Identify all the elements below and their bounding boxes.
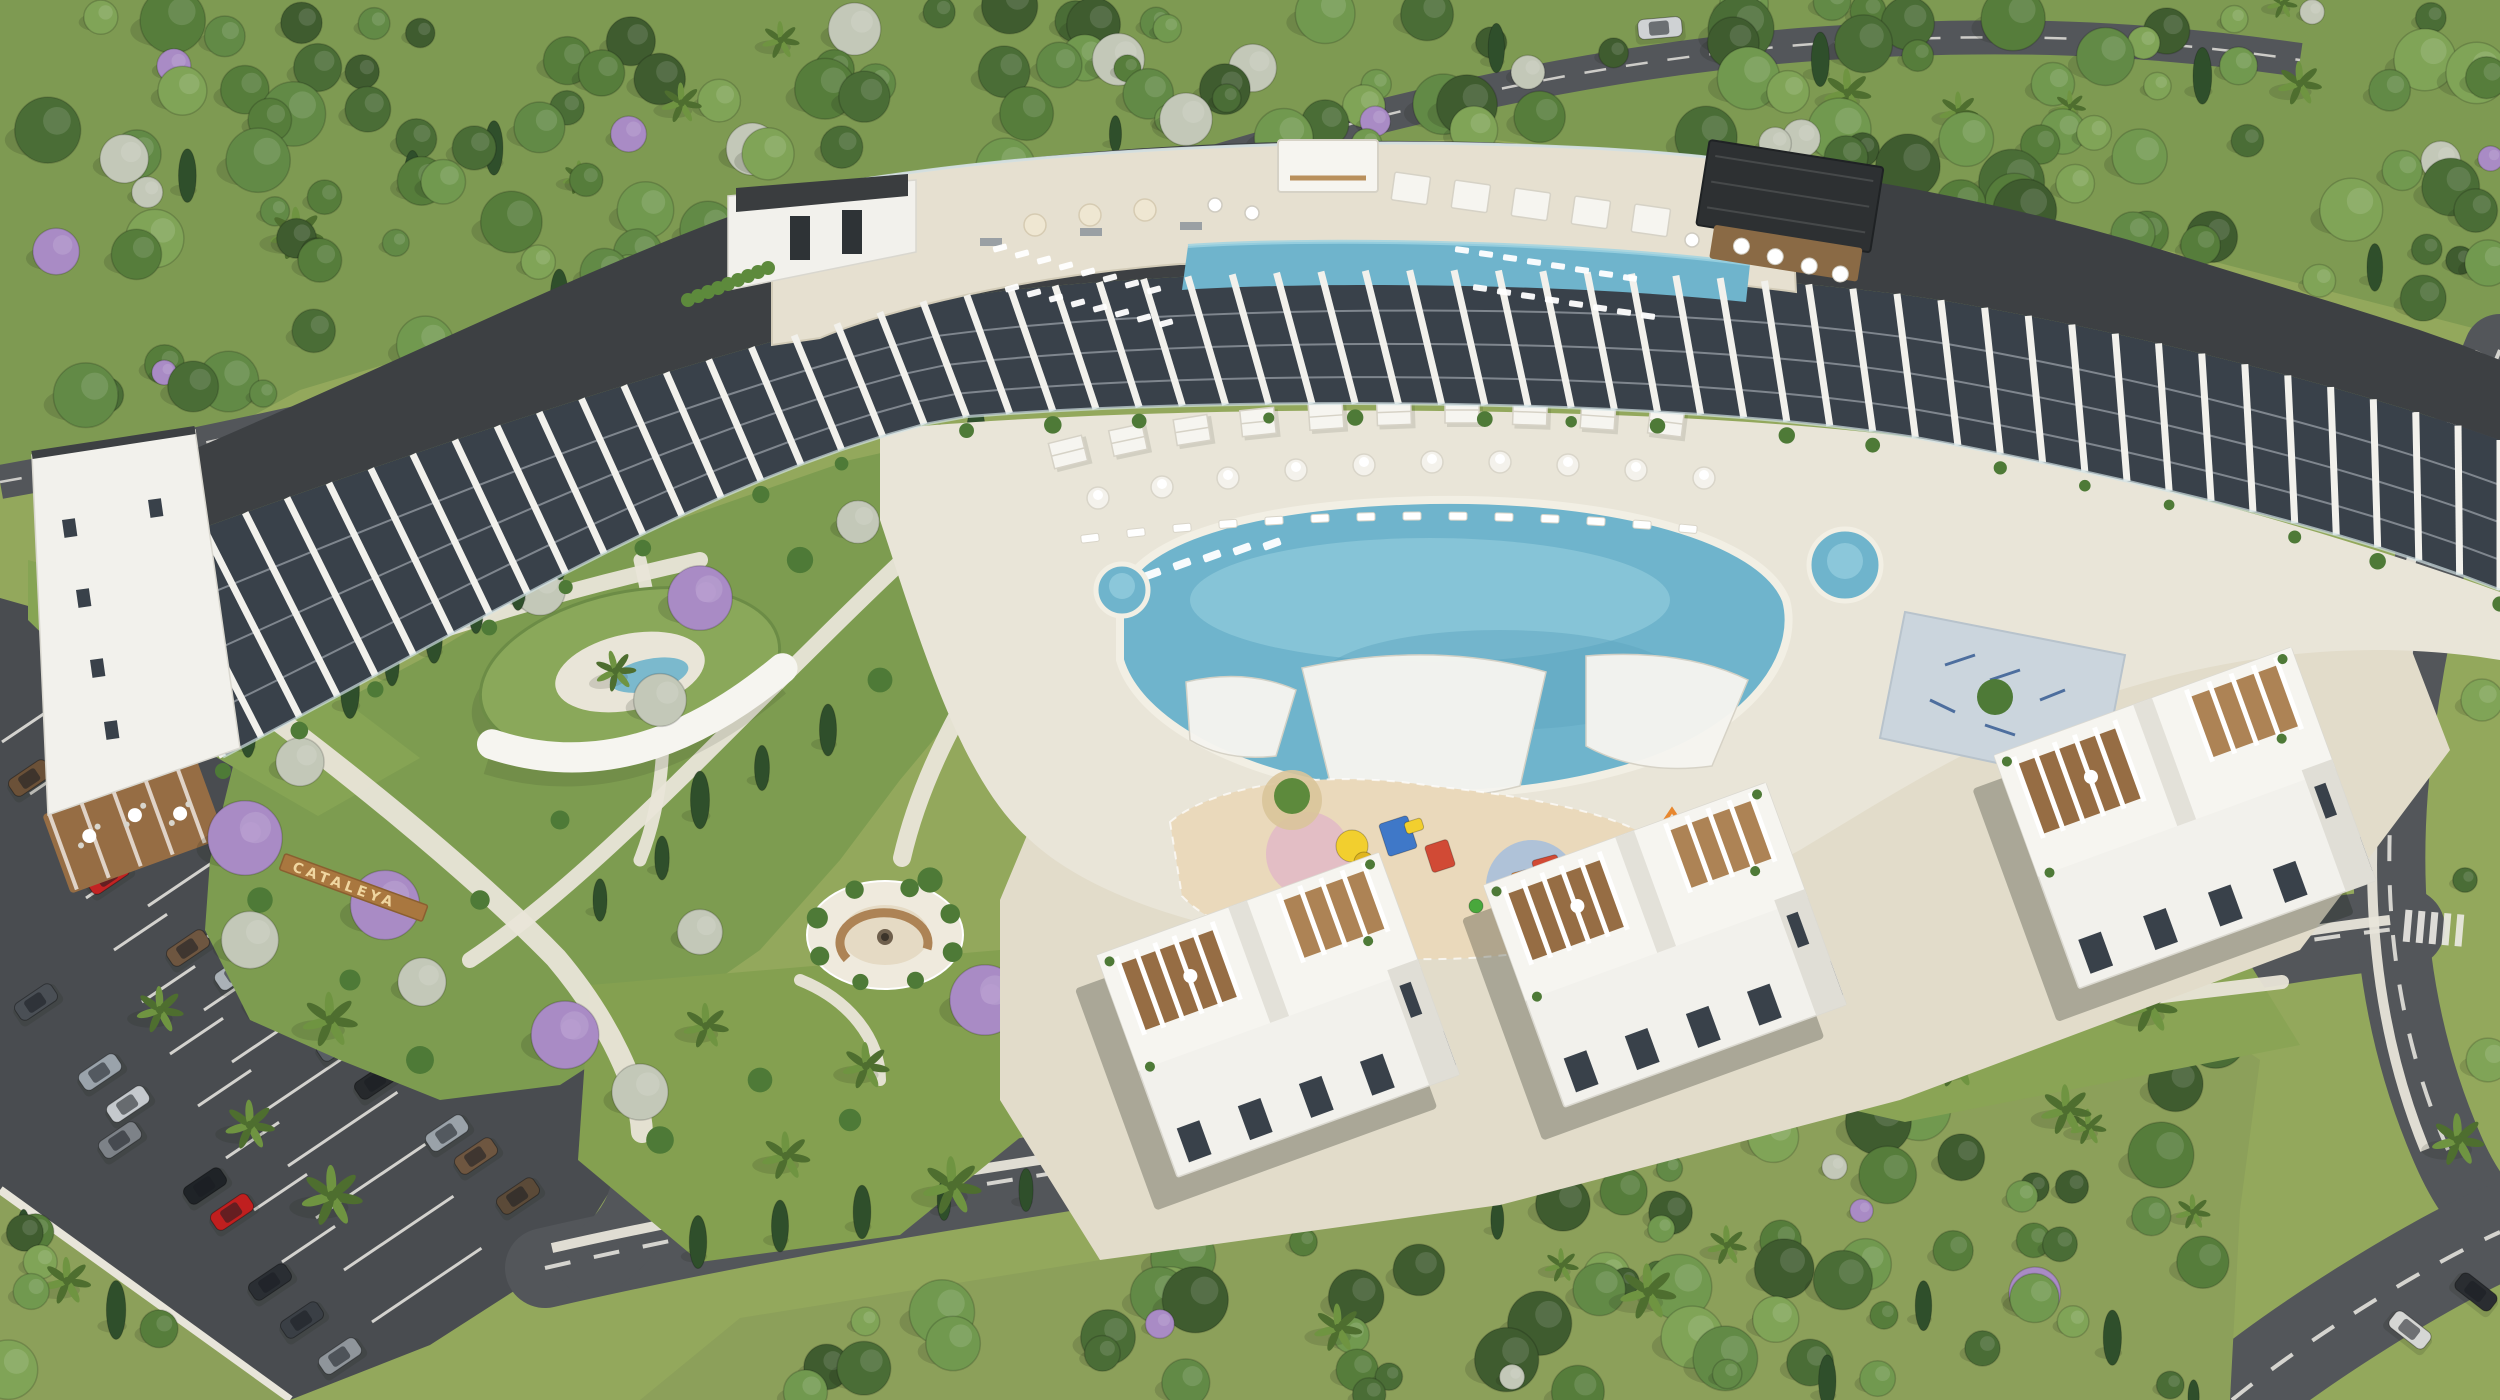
pod-chair bbox=[1685, 233, 1699, 247]
tree-highlight bbox=[1843, 142, 1861, 160]
tree-highlight bbox=[224, 360, 249, 385]
tree-highlight bbox=[1471, 113, 1491, 133]
tree-highlight bbox=[2149, 1202, 2165, 1218]
tree-highlight bbox=[2399, 156, 2416, 173]
tree-highlight bbox=[241, 73, 261, 93]
tree-highlight bbox=[2317, 269, 2331, 283]
tree-highlight bbox=[851, 11, 873, 33]
tree-highlight bbox=[1352, 1278, 1375, 1301]
tree-highlight bbox=[2447, 167, 2471, 191]
pod-chair bbox=[1208, 198, 1222, 212]
tree-highlight bbox=[179, 74, 200, 95]
tree-highlight bbox=[1165, 19, 1177, 31]
tree-highlight bbox=[656, 61, 678, 83]
tree-highlight bbox=[419, 965, 439, 985]
tree-highlight bbox=[2130, 218, 2148, 236]
bush bbox=[1994, 461, 2007, 474]
tree-highlight bbox=[1280, 117, 1305, 142]
palm-crown bbox=[778, 37, 784, 43]
palm-crown bbox=[2280, 1, 2285, 6]
cypress-tree bbox=[1019, 1168, 1033, 1211]
daybed-cushion bbox=[1223, 470, 1233, 480]
tree-highlight bbox=[2163, 15, 2182, 34]
cypress-tree bbox=[689, 1216, 706, 1269]
tree-highlight bbox=[1904, 5, 1926, 27]
tree-highlight bbox=[254, 138, 281, 165]
tree-highlight bbox=[1526, 60, 1540, 74]
bush bbox=[839, 1109, 861, 1131]
sun-lounger bbox=[1633, 520, 1652, 529]
bush bbox=[1347, 409, 1363, 425]
tree-highlight bbox=[1780, 1248, 1805, 1273]
rooftop-bar-pavilion bbox=[1278, 140, 1378, 192]
car bbox=[1634, 16, 1686, 45]
tree-highlight bbox=[156, 1316, 172, 1332]
tree-highlight bbox=[2101, 36, 2125, 60]
fire-pit-seating bbox=[807, 879, 963, 990]
gable-window bbox=[76, 588, 91, 608]
render-viewport: Aerial 3D architectural rendering - CATA… bbox=[0, 0, 2500, 1400]
purple-tree-highlight bbox=[981, 984, 1001, 1004]
tree-highlight bbox=[1415, 1252, 1437, 1274]
tree-highlight bbox=[1354, 1355, 1372, 1373]
tree-highlight bbox=[145, 181, 158, 194]
palm-crown bbox=[1334, 1324, 1342, 1332]
tree-highlight bbox=[764, 136, 786, 158]
tree-highlight bbox=[314, 51, 334, 71]
tree-highlight bbox=[626, 122, 641, 137]
tree-highlight bbox=[1090, 6, 1113, 29]
parasol bbox=[1024, 214, 1046, 236]
tree-highlight bbox=[1915, 45, 1928, 58]
tree-highlight bbox=[1773, 132, 1787, 146]
cypress-tree bbox=[1819, 1355, 1836, 1400]
tree-highlight bbox=[1668, 1197, 1686, 1215]
tree-highlight bbox=[2136, 137, 2159, 160]
tree-highlight bbox=[1611, 43, 1623, 55]
tree-highlight bbox=[246, 920, 270, 944]
tree-highlight bbox=[2198, 231, 2215, 248]
deck-bench bbox=[1080, 228, 1102, 236]
bush bbox=[752, 486, 769, 503]
tree-highlight bbox=[294, 224, 311, 241]
purple-tree-highlight bbox=[241, 822, 261, 842]
tree-highlight bbox=[2236, 53, 2252, 69]
sun-lounger bbox=[1495, 513, 1513, 521]
facade-fin bbox=[2373, 399, 2377, 547]
bush bbox=[2079, 480, 2091, 492]
tree-highlight bbox=[2420, 282, 2439, 301]
tree-highlight bbox=[839, 132, 857, 150]
tree-highlight bbox=[2020, 1185, 2033, 1198]
tree-highlight bbox=[1182, 101, 1204, 123]
sun-lounger bbox=[1587, 517, 1605, 526]
tree-highlight bbox=[1100, 1341, 1115, 1356]
bush bbox=[1565, 416, 1576, 427]
tree-highlight bbox=[2463, 871, 2473, 881]
tree-highlight bbox=[1191, 1277, 1219, 1305]
tree-highlight bbox=[1744, 56, 1770, 82]
deck-bench bbox=[980, 238, 1002, 246]
tree-highlight bbox=[949, 1324, 972, 1347]
tree-highlight bbox=[1182, 1366, 1202, 1386]
cypress-tree bbox=[853, 1185, 871, 1239]
tree-highlight bbox=[360, 60, 374, 74]
sun-lounger bbox=[1219, 519, 1238, 528]
tree-highlight bbox=[642, 190, 666, 214]
bush bbox=[215, 763, 231, 779]
cypress-tree bbox=[1491, 1200, 1504, 1239]
cypress-tree bbox=[2103, 1310, 2121, 1365]
cypress-tree bbox=[655, 836, 669, 880]
parasol bbox=[1079, 204, 1101, 226]
bush bbox=[646, 1126, 674, 1154]
tree-highlight bbox=[1835, 108, 1861, 134]
tree-highlight bbox=[1833, 1158, 1844, 1169]
tree-highlight bbox=[2421, 38, 2447, 64]
bush bbox=[2288, 531, 2301, 544]
tree-highlight bbox=[507, 200, 533, 226]
cypress-tree bbox=[179, 149, 197, 203]
cypress-tree bbox=[771, 1200, 788, 1252]
shade-canopy bbox=[1391, 172, 1431, 205]
daybed-cushion bbox=[1157, 479, 1167, 489]
bush bbox=[907, 972, 924, 989]
tree-highlight bbox=[1668, 1159, 1679, 1170]
palm-crown bbox=[2453, 1135, 2462, 1144]
palm-crown bbox=[2296, 80, 2304, 88]
palm-crown bbox=[1643, 1287, 1653, 1297]
tree-highlight bbox=[584, 168, 598, 182]
pod-chair bbox=[1245, 206, 1259, 220]
tree-highlight bbox=[1126, 59, 1137, 70]
tree-highlight bbox=[1249, 51, 1269, 71]
tree-highlight bbox=[1730, 25, 1752, 47]
tree-highlight bbox=[1839, 1259, 1864, 1284]
tree-highlight bbox=[716, 86, 734, 104]
bush bbox=[1132, 414, 1147, 429]
purple-tree-highlight bbox=[696, 582, 716, 602]
tree-highlight bbox=[1903, 144, 1930, 171]
bush bbox=[1044, 416, 1062, 434]
bush bbox=[959, 423, 974, 438]
bush bbox=[761, 261, 775, 275]
cypress-tree bbox=[1811, 32, 1829, 86]
daybed-cushion bbox=[1631, 462, 1641, 472]
daybed-cushion bbox=[1563, 457, 1573, 467]
cypress-tree bbox=[819, 704, 836, 756]
tree-highlight bbox=[53, 235, 73, 255]
sun-lounger bbox=[1081, 533, 1100, 543]
tree-highlight bbox=[860, 1349, 883, 1372]
palm-crown bbox=[2067, 104, 2072, 109]
tree-highlight bbox=[98, 5, 112, 19]
bush bbox=[787, 547, 813, 573]
bush bbox=[291, 722, 309, 740]
tree-highlight bbox=[471, 133, 489, 151]
tree-highlight bbox=[2232, 10, 2243, 21]
cypress-tree bbox=[2367, 244, 2383, 292]
tree-highlight bbox=[1502, 1337, 1529, 1364]
tree-highlight bbox=[1860, 24, 1884, 48]
tree-highlight bbox=[1145, 76, 1166, 97]
tree-highlight bbox=[1958, 1141, 1978, 1161]
sun-lounger bbox=[1311, 514, 1329, 523]
cypress-tree bbox=[690, 771, 709, 829]
tree-highlight bbox=[2141, 31, 2155, 45]
palm-crown bbox=[327, 1191, 338, 1202]
tree-highlight bbox=[29, 1279, 44, 1294]
tree-highlight bbox=[4, 1349, 29, 1374]
spa-ripple bbox=[1827, 543, 1863, 579]
tree-highlight bbox=[2071, 1311, 2084, 1324]
bush bbox=[1865, 438, 1880, 453]
tree-highlight bbox=[322, 185, 336, 199]
tree-highlight bbox=[311, 316, 329, 334]
daybed-cushion bbox=[1291, 462, 1301, 472]
tree-highlight bbox=[2156, 76, 2167, 87]
tree-highlight bbox=[2310, 3, 2320, 13]
playground-tree bbox=[1274, 778, 1310, 814]
bush bbox=[1263, 413, 1274, 424]
tree-highlight bbox=[372, 12, 385, 25]
palm-crown bbox=[63, 1277, 71, 1285]
cypress-tree bbox=[755, 745, 770, 790]
tree-highlight bbox=[697, 916, 716, 935]
facade-fin bbox=[2416, 412, 2419, 560]
bush bbox=[1477, 411, 1493, 427]
shade-canopy bbox=[1451, 180, 1491, 213]
daybed-cushion bbox=[1427, 454, 1437, 464]
tree-highlight bbox=[365, 93, 384, 112]
palm-crown bbox=[1559, 1263, 1565, 1269]
tree-highlight bbox=[2429, 7, 2442, 20]
tree-highlight bbox=[222, 22, 239, 39]
tree-highlight bbox=[656, 682, 678, 704]
bush bbox=[2164, 500, 2175, 511]
tree-highlight bbox=[1301, 1232, 1313, 1244]
bush bbox=[941, 904, 960, 923]
palm-crown bbox=[702, 1022, 710, 1030]
bush bbox=[551, 811, 570, 830]
tree-highlight bbox=[2479, 685, 2497, 703]
tree-highlight bbox=[394, 233, 405, 244]
shade-canopy bbox=[1631, 204, 1671, 237]
bush bbox=[470, 890, 489, 909]
tree-highlight bbox=[1799, 125, 1815, 141]
tree-highlight bbox=[289, 91, 316, 118]
tree-highlight bbox=[81, 373, 108, 400]
tree-highlight bbox=[2072, 170, 2088, 186]
tree-highlight bbox=[536, 110, 557, 131]
tree-highlight bbox=[1785, 77, 1803, 95]
gable-window bbox=[90, 658, 105, 678]
tree-highlight bbox=[536, 250, 550, 264]
tree-highlight bbox=[937, 1, 950, 14]
sun-lounger bbox=[1449, 512, 1467, 520]
tree-highlight bbox=[1373, 111, 1386, 124]
tree-highlight bbox=[1535, 1301, 1562, 1328]
tree-highlight bbox=[418, 23, 430, 35]
tree-highlight bbox=[937, 1290, 964, 1317]
cypress-tree bbox=[1109, 116, 1121, 153]
cabana bbox=[1173, 414, 1215, 450]
bush bbox=[835, 457, 849, 471]
stair-core-door bbox=[842, 210, 862, 254]
tree-highlight bbox=[440, 166, 459, 185]
bush bbox=[748, 1068, 773, 1093]
gable-window bbox=[104, 720, 119, 740]
tree-highlight bbox=[2031, 1281, 2052, 1302]
tree-highlight bbox=[38, 1250, 52, 1264]
tree-highlight bbox=[2156, 1132, 2184, 1160]
tree-highlight bbox=[297, 745, 317, 765]
bush bbox=[943, 942, 963, 962]
bush bbox=[845, 880, 863, 898]
membrane-canopy bbox=[1186, 677, 1296, 758]
tree-highlight bbox=[2387, 76, 2404, 93]
bush bbox=[917, 867, 942, 892]
tree-highlight bbox=[1675, 1264, 1702, 1291]
tree-highlight bbox=[2473, 195, 2491, 213]
tree-highlight bbox=[2058, 1232, 2073, 1247]
tree-highlight bbox=[121, 142, 141, 162]
tree-highlight bbox=[1000, 54, 1022, 76]
tree-highlight bbox=[627, 24, 648, 45]
bush bbox=[339, 969, 360, 990]
bush bbox=[1779, 427, 1795, 443]
tree-highlight bbox=[1884, 1155, 1908, 1179]
tree-highlight bbox=[2037, 131, 2054, 148]
tree-highlight bbox=[1659, 1219, 1670, 1230]
tree-highlight bbox=[413, 125, 430, 142]
shade-canopy bbox=[1571, 196, 1611, 229]
purple-tree-highlight bbox=[561, 1019, 581, 1039]
gable-window bbox=[148, 498, 163, 518]
sun-lounger bbox=[1541, 514, 1559, 523]
palm-crown bbox=[2190, 1209, 2196, 1215]
bush bbox=[852, 974, 868, 990]
tree-highlight bbox=[2245, 129, 2259, 143]
tree-highlight bbox=[1950, 1237, 1967, 1254]
tree-highlight bbox=[1536, 99, 1558, 121]
tree-highlight bbox=[299, 8, 316, 25]
car-cabin bbox=[1648, 20, 1669, 36]
palm-crown bbox=[782, 1152, 790, 1160]
tree-highlight bbox=[636, 1072, 660, 1096]
tree-highlight bbox=[2020, 189, 2047, 216]
tree-highlight bbox=[22, 1220, 37, 1235]
cypress-tree bbox=[1915, 1281, 1931, 1331]
tree-highlight bbox=[2347, 188, 2373, 214]
sun-lounger bbox=[1127, 528, 1146, 538]
palm-crown bbox=[1843, 89, 1851, 97]
parasol bbox=[1134, 199, 1156, 221]
daybed-cushion bbox=[1495, 454, 1505, 464]
bush bbox=[559, 580, 573, 594]
deck-bench bbox=[1180, 222, 1202, 230]
spa-ripple bbox=[1109, 573, 1135, 599]
stair-core-door bbox=[790, 216, 810, 260]
tree-highlight bbox=[1056, 49, 1075, 68]
tree-highlight bbox=[2060, 116, 2079, 135]
tree-highlight bbox=[1980, 1336, 1995, 1351]
tree-highlight bbox=[261, 384, 272, 395]
palm-crown bbox=[325, 1015, 335, 1025]
daybed-cushion bbox=[1093, 490, 1103, 500]
tree-highlight bbox=[565, 96, 579, 110]
tree-highlight bbox=[1773, 1303, 1792, 1322]
membrane-canopy bbox=[1302, 655, 1546, 798]
bush bbox=[406, 1046, 434, 1074]
cypress-tree bbox=[2193, 47, 2212, 104]
tree-highlight bbox=[43, 107, 71, 135]
tree-highlight bbox=[1860, 1203, 1870, 1213]
gym-planter bbox=[1977, 679, 2013, 715]
tree-highlight bbox=[133, 237, 154, 258]
tree-highlight bbox=[1620, 1175, 1640, 1195]
sun-lounger bbox=[1679, 524, 1698, 534]
tree-highlight bbox=[1225, 88, 1237, 100]
tree-highlight bbox=[1387, 1367, 1398, 1378]
tree-highlight bbox=[273, 201, 285, 213]
cypress-tree bbox=[106, 1281, 125, 1340]
palm-crown bbox=[2085, 1124, 2091, 1130]
palm-crown bbox=[156, 1006, 164, 1014]
palm-crown bbox=[862, 1062, 870, 1070]
palm-crown bbox=[678, 100, 685, 107]
tree-highlight bbox=[1158, 1314, 1170, 1326]
tree-highlight bbox=[190, 369, 211, 390]
fire-pit-center bbox=[881, 933, 889, 941]
bush bbox=[1650, 418, 1665, 433]
bush bbox=[481, 620, 497, 636]
sun-lounger bbox=[1173, 523, 1192, 533]
bush bbox=[247, 887, 272, 912]
cypress-tree bbox=[1488, 23, 1504, 72]
daybed-cushion bbox=[1359, 457, 1369, 467]
tree-highlight bbox=[1574, 1373, 1596, 1395]
tree-highlight bbox=[2070, 1175, 2084, 1189]
bush bbox=[367, 681, 383, 697]
sun-lounger bbox=[1265, 516, 1283, 525]
cabana bbox=[1240, 407, 1281, 441]
bush bbox=[635, 540, 652, 557]
tree-highlight bbox=[1510, 1368, 1521, 1379]
daybed-cushion bbox=[1699, 470, 1709, 480]
facade-fin bbox=[2458, 426, 2460, 575]
gable-window bbox=[62, 518, 77, 538]
sun-lounger bbox=[1403, 512, 1421, 520]
tree-highlight bbox=[1702, 116, 1728, 142]
tree-highlight bbox=[802, 1376, 820, 1394]
palm-crown bbox=[2062, 1106, 2071, 1115]
tree-highlight bbox=[598, 57, 617, 76]
tree-highlight bbox=[1962, 120, 1985, 143]
bush bbox=[810, 947, 829, 966]
palm-crown bbox=[246, 1121, 255, 1130]
tree-highlight bbox=[2199, 1244, 2221, 1266]
aerial-render: Aerial 3D architectural rendering - CATA… bbox=[0, 0, 2500, 1400]
bush bbox=[807, 907, 828, 928]
palm-crown bbox=[1724, 1242, 1731, 1249]
tree-highlight bbox=[267, 105, 285, 123]
tree-highlight bbox=[1023, 95, 1046, 118]
bush bbox=[868, 668, 893, 693]
tree-highlight bbox=[2092, 121, 2107, 136]
tree-highlight bbox=[1596, 1271, 1618, 1293]
tree-highlight bbox=[1374, 74, 1387, 87]
